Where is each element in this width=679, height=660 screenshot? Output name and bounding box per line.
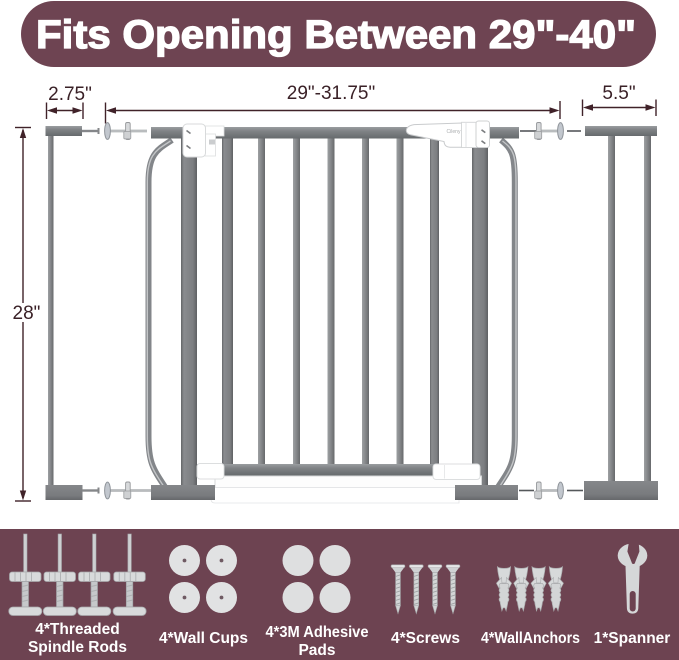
svg-text:4*Threaded: 4*Threaded bbox=[35, 621, 119, 638]
svg-text:4*WallAnchors: 4*WallAnchors bbox=[481, 630, 580, 647]
svg-text:28": 28" bbox=[13, 303, 41, 324]
svg-text:1*Spanner: 1*Spanner bbox=[594, 630, 671, 647]
svg-text:4*Wall Cups: 4*Wall Cups bbox=[159, 630, 248, 647]
svg-text:4*Screws: 4*Screws bbox=[391, 630, 460, 647]
svg-text:29"-31.75": 29"-31.75" bbox=[287, 83, 376, 104]
svg-text:Cileny: Cileny bbox=[447, 129, 461, 135]
svg-text:2.75": 2.75" bbox=[48, 84, 92, 105]
svg-text:5.5": 5.5" bbox=[602, 83, 635, 104]
svg-text:4*3M Adhesive: 4*3M Adhesive bbox=[266, 624, 369, 641]
svg-text:Pads: Pads bbox=[298, 642, 335, 659]
svg-text:Fits Opening Between 29"-40": Fits Opening Between 29"-40" bbox=[36, 13, 636, 57]
svg-text:Spindle Rods: Spindle Rods bbox=[28, 639, 127, 656]
